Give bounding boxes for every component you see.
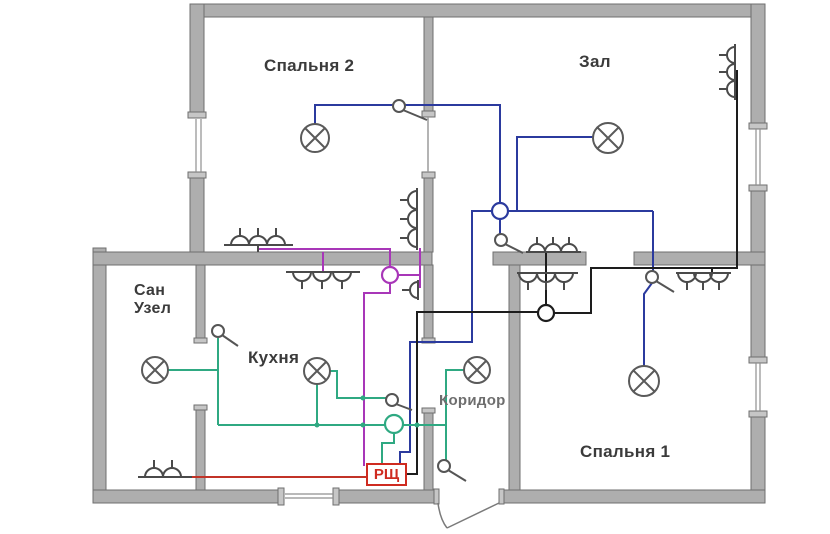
entrance-door-leaf	[438, 503, 499, 528]
switch-bathroom	[212, 325, 238, 346]
ceiling-light-bedroom2	[301, 124, 329, 152]
switch-hall	[495, 234, 523, 253]
switch-corridor	[438, 460, 466, 481]
ceiling-light-kitchen	[304, 358, 330, 384]
outlet-group-bedroom1-right	[676, 273, 731, 290]
ceiling-light-bathroom	[142, 357, 168, 383]
outlet-group-bedroom1-left	[517, 273, 578, 290]
junction-box-black	[538, 305, 554, 321]
windows	[196, 119, 760, 498]
room-label-bathroom: Сан Узел	[134, 282, 171, 319]
wiring-lighting-green	[168, 338, 464, 464]
switch-kitchen	[386, 394, 412, 410]
switch-bedroom1	[646, 271, 674, 292]
switches	[212, 100, 674, 481]
outlet-group-bathroom	[138, 460, 192, 477]
window-hall-right	[756, 129, 760, 185]
junction-box-purple	[382, 267, 398, 283]
wire-node	[361, 423, 366, 428]
junction-box-blue	[492, 203, 508, 219]
window-bedroom1-right	[756, 363, 760, 411]
junction-box-green	[385, 415, 403, 433]
room-label-bedroom1: Спальня 1	[580, 442, 670, 462]
walls	[93, 4, 767, 505]
floor-plan: Спальня 2 Зал Сан Узел Кухня Коридор Спа…	[0, 0, 830, 534]
switch-bedroom2	[393, 100, 427, 120]
outlet-group-kitchen-top	[286, 272, 360, 289]
distribution-board-box: РЩ	[366, 463, 407, 486]
room-label-bedroom2: Спальня 2	[264, 56, 354, 76]
window-bottom	[285, 494, 333, 498]
wire-node	[415, 423, 420, 428]
outlet-group-bedroom2-wall	[400, 188, 417, 250]
room-label-corridor: Коридор	[439, 392, 506, 409]
wire-node	[361, 396, 366, 401]
room-label-hall: Зал	[579, 52, 611, 72]
wire-node	[315, 423, 320, 428]
window-left	[196, 119, 201, 172]
outlet-group-hall-right	[719, 44, 735, 100]
room-label-kitchen: Кухня	[248, 348, 299, 368]
outlet-kitchen-wall	[402, 280, 418, 300]
outlet-group-hall-bottom	[526, 237, 581, 252]
ceiling-light-corridor	[464, 357, 490, 383]
ceiling-light-bedroom1	[629, 366, 659, 396]
wiring-lighting-blue	[315, 105, 653, 464]
ceiling-light-hall	[593, 123, 623, 153]
floor-plan-svg	[0, 0, 830, 534]
